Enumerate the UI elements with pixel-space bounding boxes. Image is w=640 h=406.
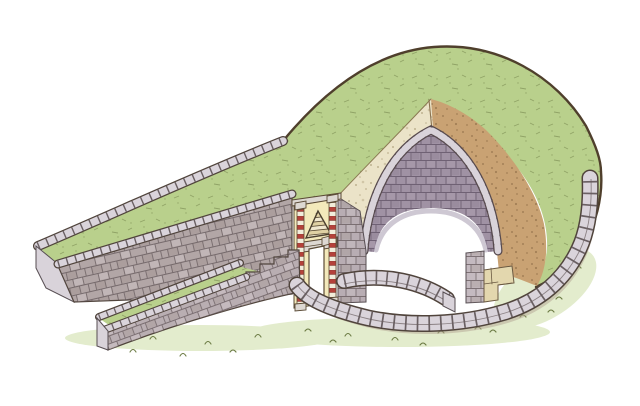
right-column-shaft — [329, 202, 336, 301]
right-column — [327, 194, 338, 305]
illustration-canvas — [0, 0, 640, 406]
left-column-base — [295, 303, 306, 311]
cut-stone-texture — [466, 251, 484, 303]
tholos-tomb-illustration — [0, 0, 640, 406]
